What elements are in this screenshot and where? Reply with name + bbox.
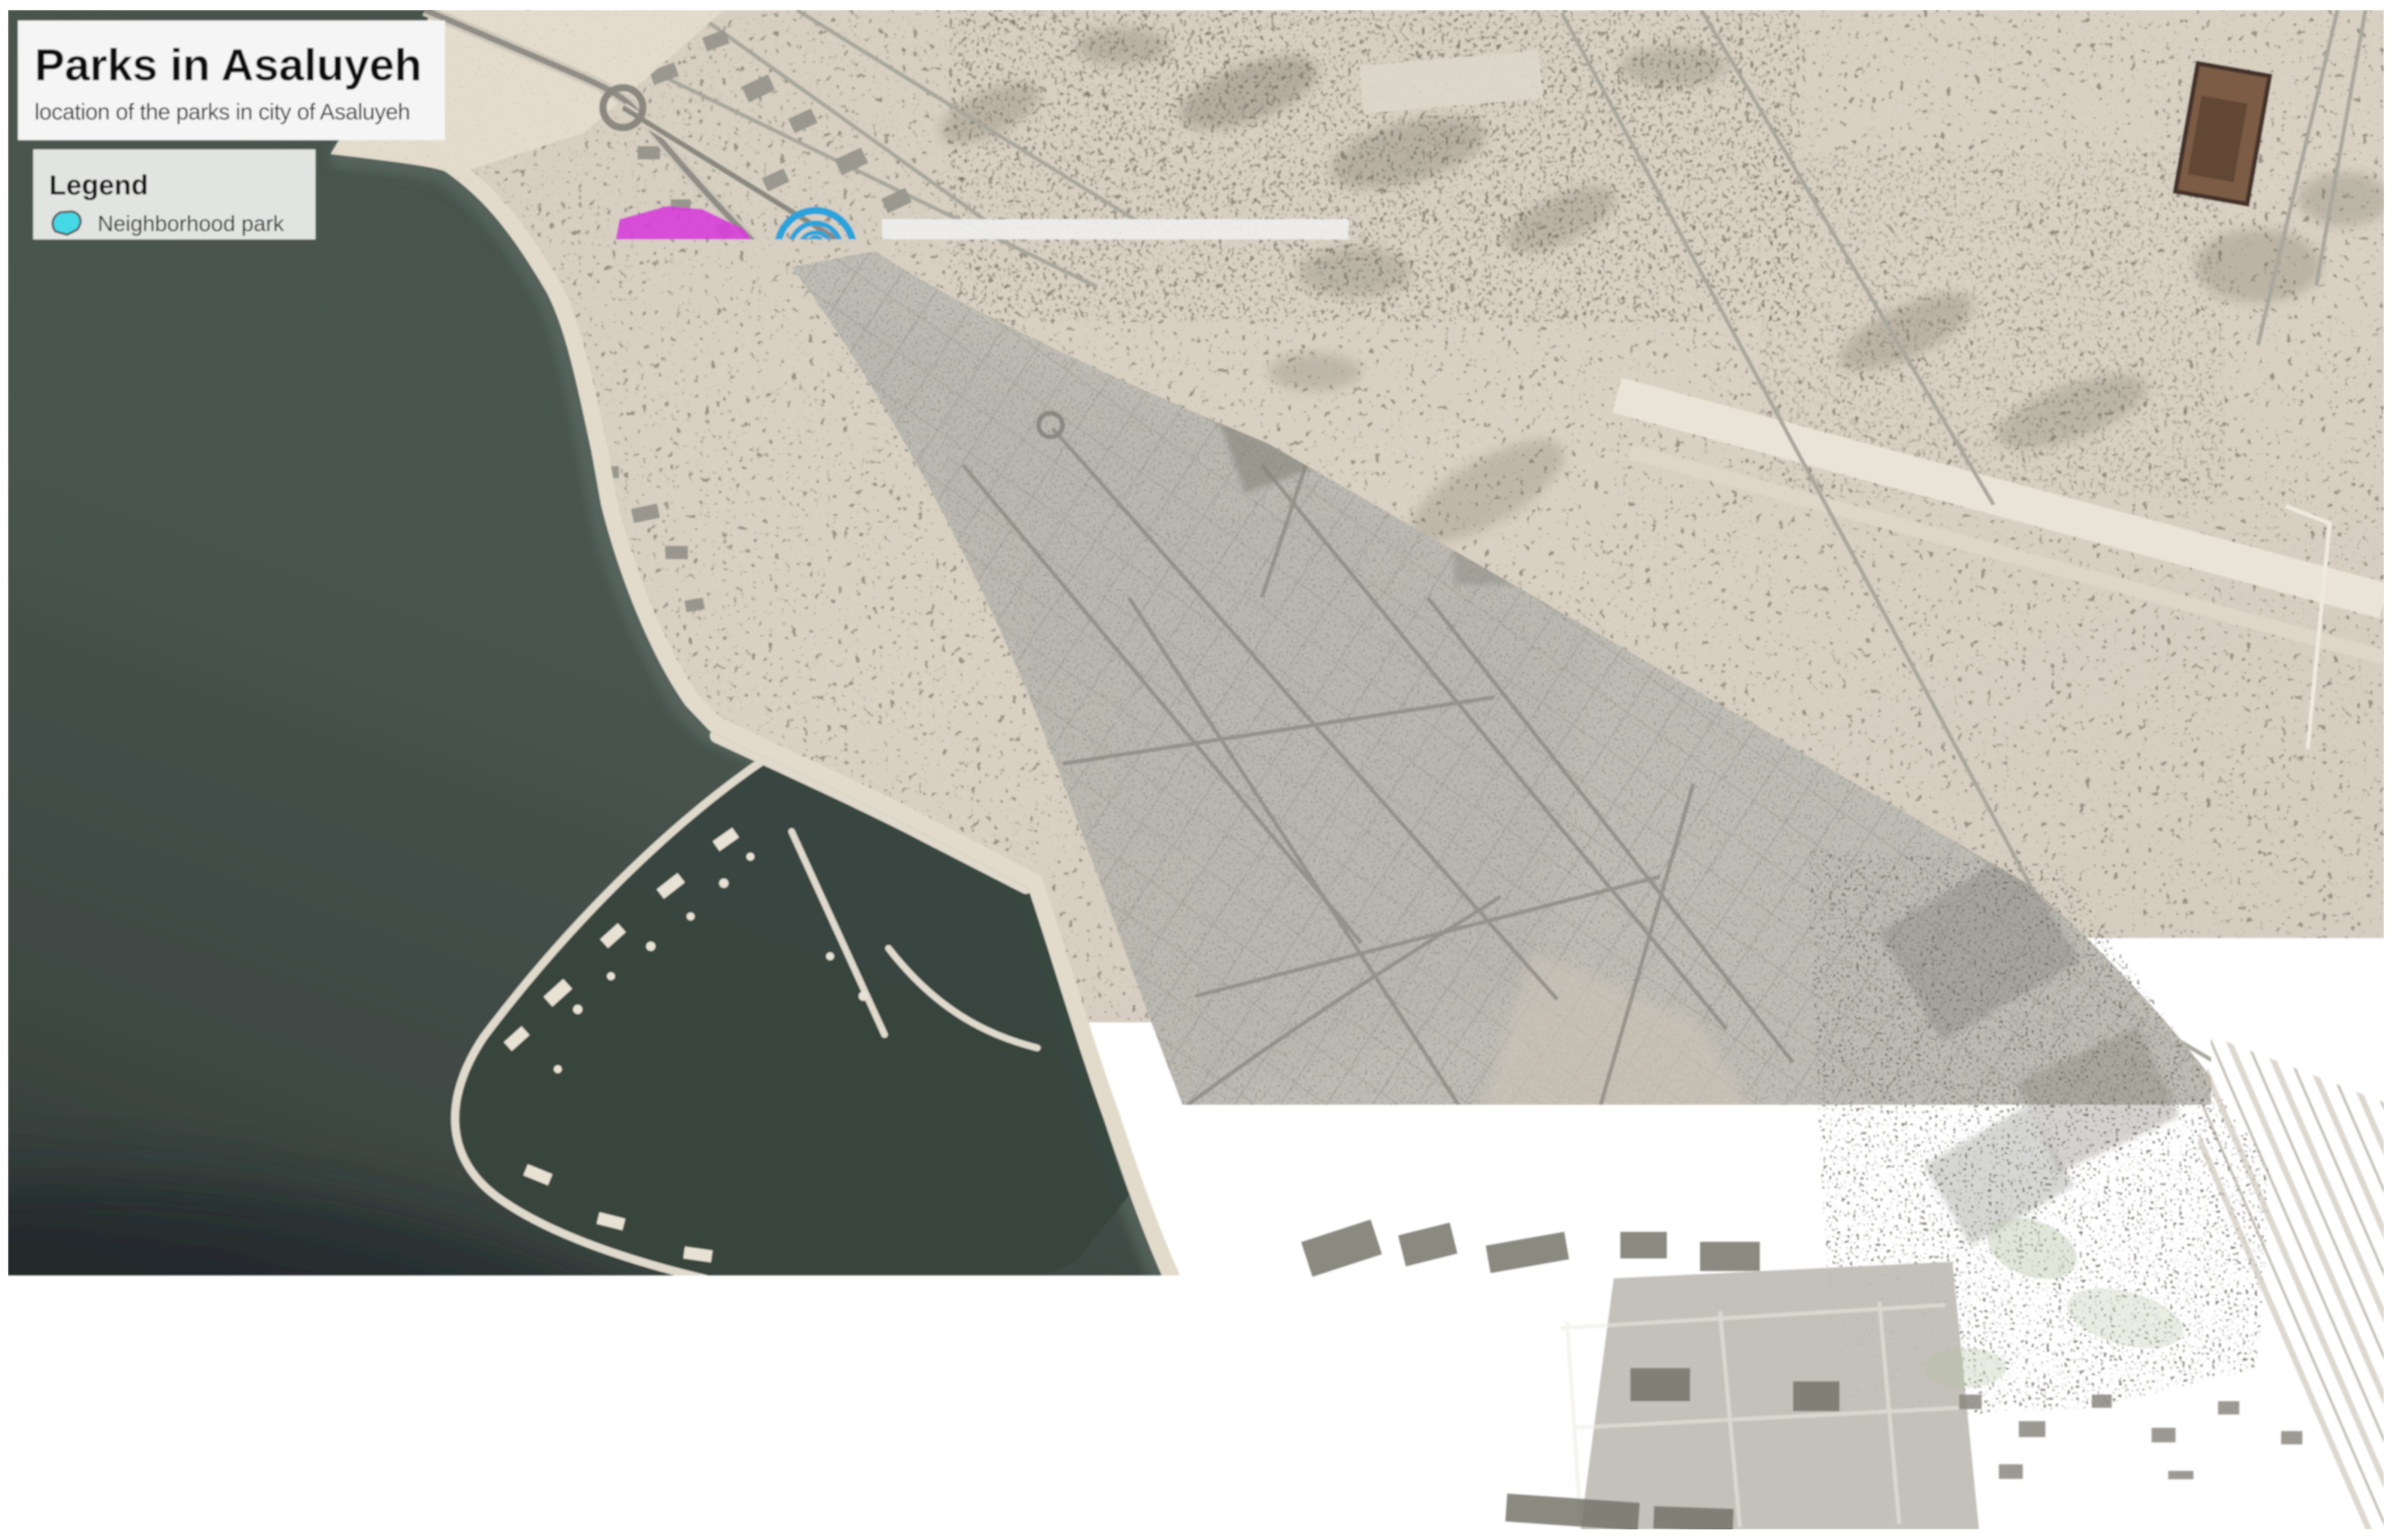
svg-text:Womens Park: Womens Park <box>98 334 235 359</box>
svg-text:Mother Park: Mother Park <box>1191 586 1397 629</box>
svg-text:Google Earth: Google Earth <box>15 1428 288 1480</box>
svg-text:Women’s Park: Women’s Park <box>1499 906 1745 948</box>
svg-text:Mother park: Mother park <box>98 252 215 277</box>
svg-text:location of the parks in city: location of the parks in city of Asaluye… <box>35 100 410 125</box>
svg-text:Parks in Asaluyeh: Parks in Asaluyeh <box>35 40 422 90</box>
svg-text:Image © 2024 Airbus: Image © 2024 Airbus <box>7 1493 168 1513</box>
svg-text:3000 ft: 3000 ft <box>2071 1494 2152 1523</box>
svg-text:Neighborhood park: Neighborhood park <box>98 211 284 236</box>
svg-text:Legend: Legend <box>49 169 148 201</box>
svg-text:Neighborhood Park: Neighborhood Park <box>906 240 1319 296</box>
svg-text:Side Park: Side Park <box>1175 1128 1337 1171</box>
svg-text:N: N <box>2304 1428 2337 1479</box>
svg-text:Side park: Side park <box>98 294 191 319</box>
